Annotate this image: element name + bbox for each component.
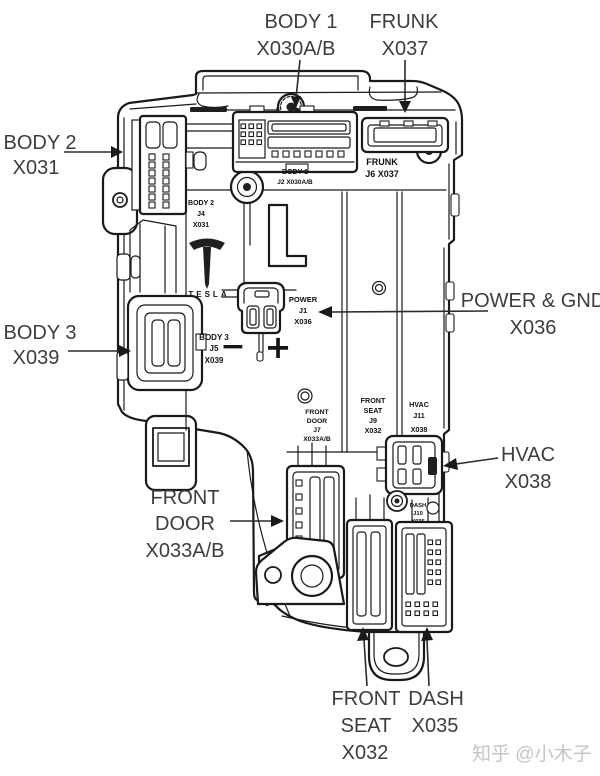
internal-front-door-name1: FRONT <box>305 409 329 416</box>
callout-body2-code: X031 <box>13 157 60 179</box>
internal-label-body2: BODY 2 J4 X031 <box>188 200 214 229</box>
connector-tower <box>130 220 176 293</box>
internal-front-door-name2: DOOR <box>307 418 327 425</box>
watermark: 知乎 @小木子 <box>472 743 592 765</box>
internal-label-power: POWER J1 X036 <box>289 295 318 326</box>
internal-body1-code: J2 X030A/B <box>277 179 313 186</box>
internal-body2-name: BODY 2 <box>188 200 214 207</box>
molded-letter-L <box>269 205 306 266</box>
internal-hvac-name: HVAC <box>409 400 429 409</box>
lower-left-mounting-ear <box>146 416 196 490</box>
internal-body2-j: J4 <box>197 211 205 218</box>
callout-front-seat-leader <box>364 640 367 686</box>
internal-label-front-seat: FRONT SEAT J9 X032 <box>361 396 386 435</box>
bracket-plate <box>256 538 344 604</box>
internal-label-body1: BODY 1 J2 X030A/B <box>277 169 313 186</box>
internal-front-door-j: J7 <box>313 427 321 434</box>
internal-front-door-code: X033A/B <box>303 436 331 443</box>
internal-power-j: J1 <box>299 306 307 315</box>
callout-front-seat-name2: SEAT <box>341 715 392 737</box>
internal-dash-j: J10 <box>413 511 423 517</box>
callout-front-door-name1: FRONT <box>151 487 220 509</box>
internal-body3-name: BODY 3 <box>199 333 229 342</box>
callout-hvac-code: X038 <box>505 471 552 493</box>
callout-power-gnd: POWER & GND X036 <box>318 290 600 339</box>
internal-dash-code: X035 <box>411 519 425 525</box>
callout-frunk-code: X037 <box>382 38 429 60</box>
body1-connector <box>233 106 357 172</box>
internal-body3-j: J5 <box>210 344 219 353</box>
internal-dash-name: DASH <box>410 503 426 509</box>
tesla-logo-icon <box>189 239 225 290</box>
callout-dash-code: X035 <box>412 715 459 737</box>
internal-front-seat-name2: SEAT <box>364 406 383 415</box>
internal-hvac-code: X038 <box>411 425 428 434</box>
callout-hvac-leader <box>456 458 498 464</box>
internal-frunk-name: FRUNK <box>366 157 398 167</box>
callout-front-door-name2: DOOR <box>155 513 215 535</box>
internal-label-hvac: HVAC J11 X038 <box>409 400 429 434</box>
internal-body3-code: X039 <box>205 356 224 365</box>
case-tab <box>117 254 130 280</box>
internal-body1-name: BODY 1 <box>282 169 308 176</box>
callout-body1: BODY 1 X030A/B <box>257 11 338 108</box>
bottom-mounting-tab <box>369 632 424 680</box>
body3-connector <box>117 296 206 390</box>
callout-body1-name: BODY 1 <box>265 11 338 33</box>
internal-label-dash: DASH J10 X035 <box>410 503 426 525</box>
callout-hvac-name: HVAC <box>501 444 555 466</box>
callout-frunk-arrow <box>399 101 411 113</box>
case-tab <box>446 314 454 332</box>
rivet <box>373 282 386 295</box>
power-connector: − + <box>220 283 296 366</box>
callout-body3: BODY 3 X039 <box>4 322 132 369</box>
screw-boss <box>231 171 263 203</box>
internal-frunk-code: J6 X037 <box>365 169 399 179</box>
callout-front-door-arrow <box>271 515 284 527</box>
internal-label-front-door: FRONT DOOR J7 X033A/B <box>303 409 331 443</box>
callout-frunk: FRUNK X037 <box>370 11 440 113</box>
diagram-canvas: TESLA <box>0 0 600 776</box>
plus-symbol: + <box>265 328 292 366</box>
callout-front-seat-code: X032 <box>342 742 389 764</box>
callout-body3-code: X039 <box>13 347 60 369</box>
front-seat-connector <box>347 495 392 630</box>
callout-frunk-name: FRUNK <box>370 11 440 33</box>
callout-body2-name: BODY 2 <box>4 132 77 154</box>
internal-body2-code: X031 <box>193 222 209 229</box>
case-tab <box>451 194 459 216</box>
internal-power-name: POWER <box>289 295 318 304</box>
callout-power-gnd-leader <box>331 311 488 312</box>
internal-front-seat-j: J9 <box>369 416 377 425</box>
callout-dash-name: DASH <box>408 688 464 710</box>
internal-front-seat-code: X032 <box>365 426 382 435</box>
callout-body1-code: X030A/B <box>257 38 336 60</box>
internal-front-seat-name1: FRONT <box>361 396 386 405</box>
hvac-connector <box>377 436 442 494</box>
tesla-body-controller-diagram: TESLA <box>0 0 600 776</box>
internal-label-frunk: FRUNK J6 X037 <box>365 157 399 179</box>
body2-connector <box>132 116 193 214</box>
callout-power-gnd-name: POWER & GND <box>461 290 600 312</box>
callout-dash-leader <box>427 640 429 686</box>
callout-front-door-code: X033A/B <box>146 540 225 562</box>
callout-power-gnd-arrow <box>318 306 332 318</box>
internal-power-code: X036 <box>294 317 312 326</box>
callout-front-door: FRONT DOOR X033A/B <box>146 487 284 562</box>
internal-hvac-j: J11 <box>413 411 425 420</box>
callout-body3-name: BODY 3 <box>4 322 77 344</box>
callout-hvac: HVAC X038 <box>443 444 555 493</box>
frunk-connector <box>362 118 448 152</box>
callout-front-seat-name1: FRONT <box>332 688 401 710</box>
callout-power-gnd-code: X036 <box>510 317 557 339</box>
rivet <box>298 389 312 403</box>
case-tab <box>446 282 454 300</box>
